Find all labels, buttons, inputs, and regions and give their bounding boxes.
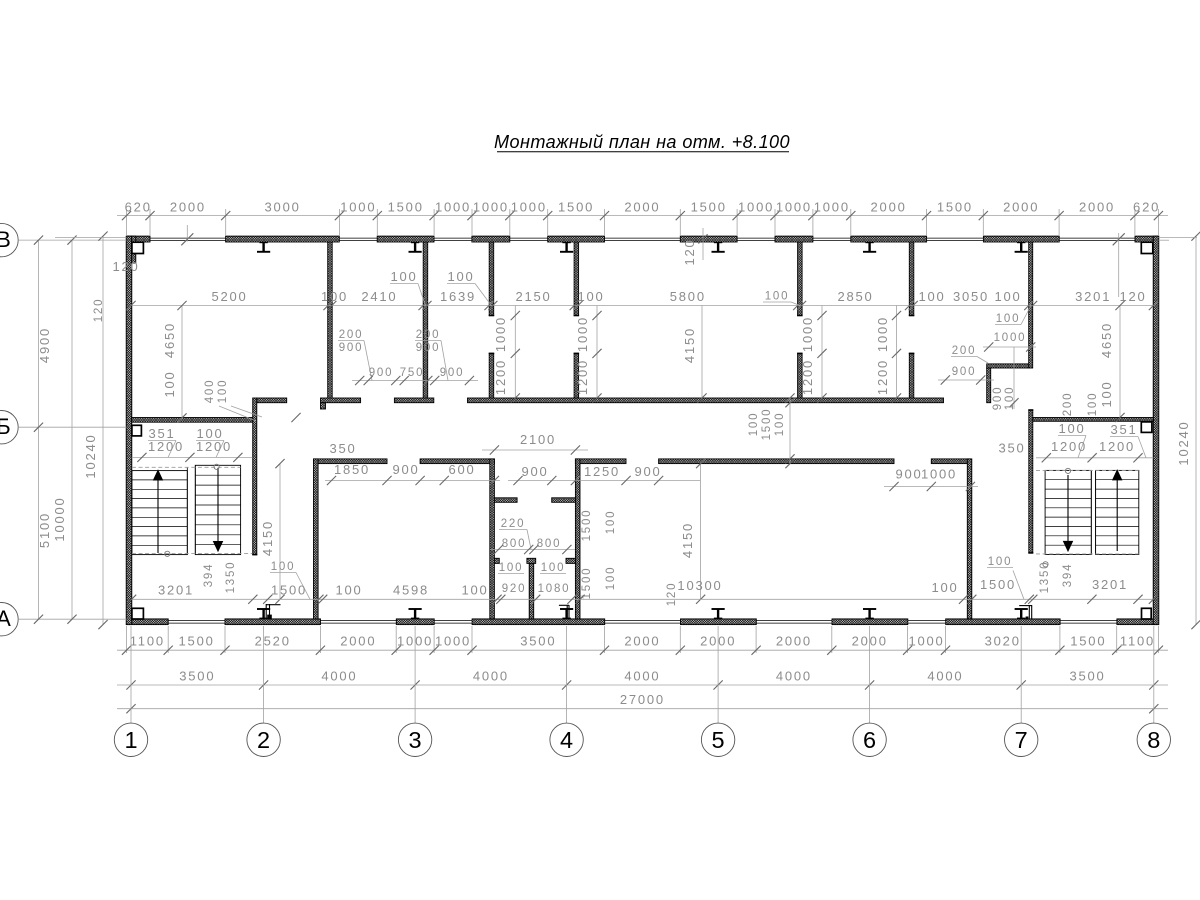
svg-text:1200: 1200 — [1051, 439, 1087, 454]
svg-text:400: 400 — [204, 379, 216, 404]
svg-text:100: 100 — [1099, 380, 1114, 407]
svg-text:1500: 1500 — [179, 634, 215, 649]
svg-text:100: 100 — [774, 412, 786, 437]
svg-text:3500: 3500 — [179, 668, 215, 683]
svg-text:100: 100 — [748, 412, 760, 437]
svg-text:2000: 2000 — [1003, 200, 1039, 215]
svg-text:3020: 3020 — [985, 634, 1021, 649]
svg-text:1: 1 — [124, 727, 137, 753]
svg-text:100: 100 — [1087, 392, 1099, 417]
svg-text:200: 200 — [1062, 392, 1074, 417]
svg-text:2000: 2000 — [776, 634, 812, 649]
svg-text:4000: 4000 — [776, 668, 812, 683]
svg-text:4650: 4650 — [162, 322, 177, 358]
svg-text:1500: 1500 — [271, 583, 307, 598]
svg-text:3: 3 — [409, 727, 422, 753]
svg-text:1000: 1000 — [435, 634, 471, 649]
svg-text:4150: 4150 — [680, 522, 695, 558]
svg-text:900: 900 — [339, 342, 364, 354]
svg-text:200: 200 — [416, 329, 441, 341]
svg-text:1200: 1200 — [575, 359, 590, 395]
svg-text:900: 900 — [369, 367, 394, 379]
svg-text:4000: 4000 — [927, 668, 963, 683]
svg-text:10000: 10000 — [52, 496, 67, 541]
svg-text:350: 350 — [329, 441, 356, 456]
svg-text:1350: 1350 — [1039, 561, 1051, 594]
svg-text:1000: 1000 — [340, 200, 376, 215]
svg-text:1350: 1350 — [225, 561, 237, 594]
svg-text:100: 100 — [1004, 386, 1016, 411]
svg-text:3000: 3000 — [265, 200, 301, 215]
svg-text:100: 100 — [499, 562, 524, 574]
svg-text:100: 100 — [931, 580, 958, 595]
svg-text:1100: 1100 — [1120, 634, 1155, 649]
svg-text:1500: 1500 — [691, 200, 727, 215]
svg-text:8: 8 — [1147, 727, 1160, 753]
svg-text:4000: 4000 — [473, 668, 509, 683]
svg-text:3201: 3201 — [158, 583, 194, 598]
svg-text:1000: 1000 — [800, 316, 815, 352]
svg-text:4150: 4150 — [260, 520, 275, 556]
svg-text:10240: 10240 — [1176, 420, 1191, 465]
svg-text:1200: 1200 — [875, 359, 890, 395]
svg-text:1500: 1500 — [581, 509, 593, 542]
svg-text:600: 600 — [448, 462, 475, 477]
svg-text:1850: 1850 — [334, 462, 370, 477]
svg-text:351: 351 — [1110, 422, 1137, 437]
svg-text:4650: 4650 — [1099, 322, 1114, 358]
svg-text:4900: 4900 — [37, 327, 52, 363]
svg-text:1200: 1200 — [493, 359, 508, 395]
svg-text:2850: 2850 — [837, 289, 873, 304]
svg-text:900: 900 — [440, 367, 465, 379]
svg-text:1000: 1000 — [875, 316, 890, 352]
svg-text:100: 100 — [335, 583, 362, 598]
svg-text:100: 100 — [605, 566, 617, 591]
svg-text:100: 100 — [996, 313, 1021, 325]
svg-text:1200: 1200 — [148, 439, 184, 454]
svg-text:100: 100 — [447, 269, 474, 284]
svg-text:100: 100 — [162, 370, 177, 397]
svg-text:120: 120 — [666, 582, 678, 607]
svg-text:В: В — [0, 227, 11, 252]
svg-text:1500: 1500 — [581, 567, 593, 600]
svg-text:1200: 1200 — [196, 439, 232, 454]
svg-text:10240: 10240 — [83, 433, 98, 478]
svg-text:4598: 4598 — [393, 583, 429, 598]
svg-text:220: 220 — [501, 518, 526, 530]
svg-text:1000: 1000 — [776, 200, 812, 215]
svg-text:100: 100 — [461, 583, 488, 598]
svg-text:2410: 2410 — [361, 289, 397, 304]
svg-text:1500: 1500 — [761, 408, 773, 441]
svg-text:1000: 1000 — [493, 316, 508, 352]
svg-text:Монтажный план на отм. +8.100: Монтажный план на отм. +8.100 — [494, 132, 790, 152]
svg-text:5200: 5200 — [211, 289, 247, 304]
svg-text:350: 350 — [998, 441, 1025, 456]
svg-text:394: 394 — [1062, 563, 1074, 588]
svg-text:3500: 3500 — [520, 634, 556, 649]
svg-text:1500: 1500 — [980, 577, 1016, 592]
svg-text:900: 900 — [992, 386, 1004, 411]
svg-text:2000: 2000 — [1079, 200, 1115, 215]
svg-text:7: 7 — [1015, 727, 1028, 753]
svg-text:Б: Б — [0, 414, 11, 439]
svg-text:100: 100 — [217, 379, 229, 404]
svg-text:1000: 1000 — [921, 467, 957, 482]
svg-text:1500: 1500 — [937, 200, 973, 215]
svg-text:1200: 1200 — [800, 359, 815, 395]
svg-text:1100: 1100 — [130, 634, 165, 649]
svg-text:100: 100 — [994, 289, 1021, 304]
svg-text:1000: 1000 — [435, 200, 471, 215]
svg-text:2000: 2000 — [624, 200, 660, 215]
svg-text:200: 200 — [339, 329, 364, 341]
svg-text:2000: 2000 — [624, 634, 660, 649]
svg-text:1000: 1000 — [511, 200, 547, 215]
svg-text:1000: 1000 — [738, 200, 774, 215]
svg-text:4000: 4000 — [321, 668, 357, 683]
svg-text:920: 920 — [502, 583, 527, 595]
svg-text:2000: 2000 — [871, 200, 907, 215]
svg-text:620: 620 — [125, 200, 152, 215]
svg-text:6: 6 — [863, 727, 876, 753]
svg-text:900: 900 — [521, 464, 548, 479]
svg-text:3500: 3500 — [1069, 668, 1105, 683]
svg-text:1639: 1639 — [440, 289, 476, 304]
svg-text:1000: 1000 — [575, 316, 590, 352]
svg-text:1500: 1500 — [388, 200, 424, 215]
svg-text:1000: 1000 — [814, 200, 850, 215]
svg-text:1000: 1000 — [994, 332, 1027, 344]
svg-text:100: 100 — [541, 562, 566, 574]
svg-text:3201: 3201 — [1092, 577, 1128, 592]
svg-text:4150: 4150 — [682, 327, 697, 363]
svg-text:4: 4 — [560, 727, 573, 753]
svg-text:2100: 2100 — [520, 432, 556, 447]
svg-text:1500: 1500 — [558, 200, 594, 215]
svg-text:10300: 10300 — [677, 578, 722, 593]
svg-text:2: 2 — [257, 727, 270, 753]
svg-text:900: 900 — [392, 462, 419, 477]
svg-text:120: 120 — [682, 238, 697, 265]
svg-text:120: 120 — [93, 298, 105, 323]
svg-text:100: 100 — [1058, 421, 1085, 436]
svg-text:100: 100 — [271, 561, 296, 573]
svg-text:5100: 5100 — [37, 512, 52, 548]
svg-text:5800: 5800 — [670, 289, 706, 304]
svg-text:2150: 2150 — [515, 289, 551, 304]
svg-text:750: 750 — [400, 367, 425, 379]
svg-text:2000: 2000 — [170, 200, 206, 215]
svg-text:100: 100 — [321, 289, 348, 304]
svg-text:900: 900 — [634, 464, 661, 479]
svg-text:3201: 3201 — [1075, 289, 1111, 304]
svg-text:1250: 1250 — [584, 464, 620, 479]
svg-text:100: 100 — [577, 289, 604, 304]
svg-text:900: 900 — [895, 467, 922, 482]
svg-text:А: А — [0, 606, 11, 631]
svg-text:5: 5 — [712, 727, 725, 753]
svg-text:100: 100 — [988, 556, 1013, 568]
svg-text:1000: 1000 — [908, 634, 944, 649]
svg-text:1000: 1000 — [473, 200, 509, 215]
svg-text:100: 100 — [605, 510, 617, 535]
svg-text:27000: 27000 — [620, 692, 665, 707]
svg-text:2520: 2520 — [255, 634, 291, 649]
svg-text:900: 900 — [416, 342, 441, 354]
svg-text:1500: 1500 — [1070, 634, 1106, 649]
svg-text:800: 800 — [537, 538, 562, 550]
svg-text:394: 394 — [203, 563, 215, 588]
svg-text:900: 900 — [952, 366, 977, 378]
svg-text:4000: 4000 — [624, 668, 660, 683]
svg-text:2000: 2000 — [340, 634, 376, 649]
svg-text:3050: 3050 — [953, 289, 989, 304]
svg-text:200: 200 — [952, 345, 977, 357]
svg-text:100: 100 — [918, 289, 945, 304]
svg-text:1200: 1200 — [1099, 439, 1135, 454]
svg-text:100: 100 — [390, 269, 417, 284]
svg-text:100: 100 — [765, 291, 790, 303]
svg-text:1080: 1080 — [538, 583, 571, 595]
svg-text:800: 800 — [502, 538, 527, 550]
svg-text:620: 620 — [1133, 200, 1160, 215]
svg-text:120: 120 — [112, 259, 139, 274]
